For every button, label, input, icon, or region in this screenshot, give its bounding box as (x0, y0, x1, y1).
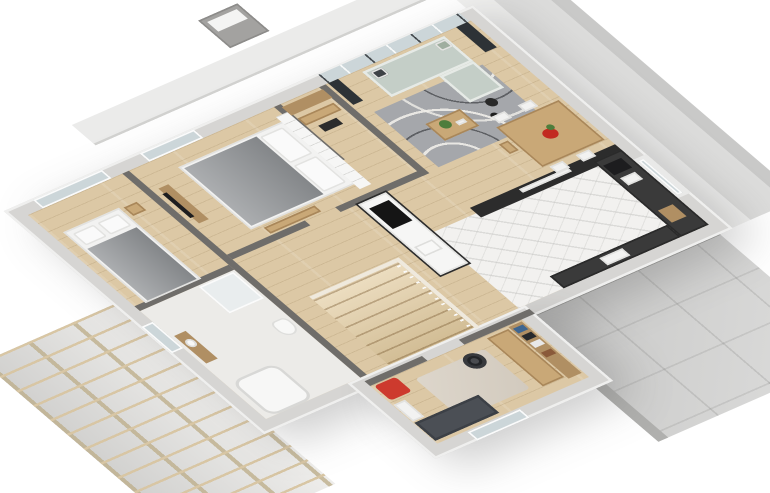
floorplan-render (0, 0, 770, 493)
chimney (198, 3, 270, 48)
chimney-cap (207, 9, 248, 32)
